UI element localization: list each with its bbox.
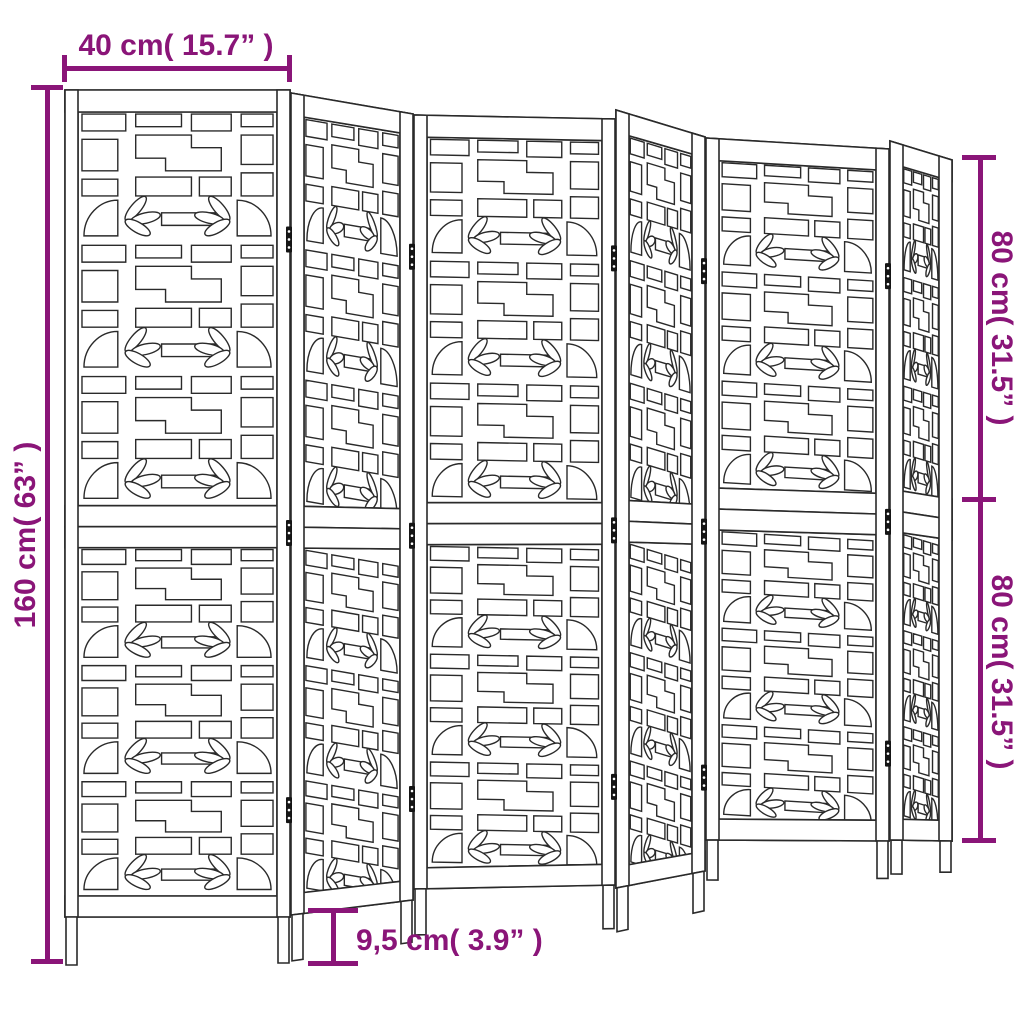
panel-bottom-rail <box>65 896 290 917</box>
panel-leg-right <box>940 841 951 872</box>
panel-stile-right <box>939 156 952 841</box>
panel-top-rail <box>414 115 615 141</box>
panel-leg-left <box>891 840 902 874</box>
panel-mid-rail-lower <box>65 527 290 548</box>
dim-right-lower-label: 80 cm( 31.5” ) <box>986 574 1016 769</box>
panel-bottom-rail <box>414 864 615 889</box>
panel-leg-left <box>66 917 77 965</box>
panel-stile-left <box>706 138 719 840</box>
divider-panel-6 <box>890 141 952 874</box>
dim-top-width-label: 40 cm( 15.7” ) <box>78 31 273 61</box>
panel-mid-rail-lower <box>414 523 615 544</box>
panel-stile-right <box>876 148 889 841</box>
dimension-diagram: 40 cm( 15.7” ) 160 cm( 63” ) 80 cm( 31.5… <box>0 0 1024 1024</box>
divider-panel-4 <box>616 110 705 932</box>
panel-mid-rail-upper <box>291 506 413 529</box>
dim-right-tick-middle <box>962 497 996 502</box>
hinge <box>701 765 707 791</box>
dim-left-height-tick-bottom <box>31 959 63 964</box>
hinge <box>701 258 707 284</box>
hinge <box>286 797 292 823</box>
panel-leg-left <box>292 914 303 961</box>
panel-mid-rail-lower <box>291 527 413 549</box>
panel-stile-left <box>291 93 304 915</box>
panel-leg-right <box>693 871 704 913</box>
panel-top-rail <box>65 90 290 112</box>
panel-leg-left <box>617 886 628 932</box>
panel-leg-right <box>877 841 888 879</box>
panel-stile-left <box>890 141 903 840</box>
divider-panel-3 <box>414 115 615 935</box>
dim-left-height-line <box>45 87 50 962</box>
divider-panel-1 <box>65 90 290 965</box>
hinge <box>885 741 891 767</box>
dim-right-tick-bottom <box>962 838 996 843</box>
panel-stile-right <box>400 112 413 902</box>
panel-stile-right <box>602 119 615 886</box>
dim-top-width-line <box>64 66 290 71</box>
hinge <box>611 245 617 271</box>
dim-top-width-tick-right <box>287 55 292 82</box>
panel-stile-left <box>414 115 427 889</box>
hinge <box>611 774 617 800</box>
panel-leg-left <box>707 840 718 880</box>
hinge <box>611 517 617 543</box>
dim-right-upper-label: 80 cm( 31.5” ) <box>986 230 1016 425</box>
divider-panel-5 <box>706 138 889 880</box>
divider-panel-2 <box>291 93 413 961</box>
hinge <box>409 244 415 270</box>
panel-stile-right <box>277 90 290 917</box>
hinge <box>409 786 415 812</box>
panel-stile-left <box>616 110 629 888</box>
panel-bottom-rail <box>706 819 889 841</box>
dim-left-height-label: 160 cm( 63” ) <box>11 442 41 629</box>
panel-mid-rail-upper <box>65 506 290 527</box>
hinge <box>885 263 891 289</box>
room-divider-drawing <box>0 0 1024 1024</box>
hinge <box>885 509 891 535</box>
hinge <box>286 226 292 252</box>
dim-bottom-leg-line <box>331 910 336 964</box>
panel-leg-right <box>278 917 289 963</box>
panel-mid-rail-upper <box>414 503 615 524</box>
hinge <box>409 523 415 549</box>
panel-stile-left <box>65 90 78 917</box>
hinge <box>701 519 707 545</box>
hinge <box>286 520 292 546</box>
panel-stile-right <box>692 133 705 873</box>
dim-bottom-leg-tick-bottom <box>308 961 358 966</box>
panel-leg-right <box>603 885 614 929</box>
dim-bottom-leg-label: 9,5 cm( 3.9” ) <box>356 926 543 956</box>
